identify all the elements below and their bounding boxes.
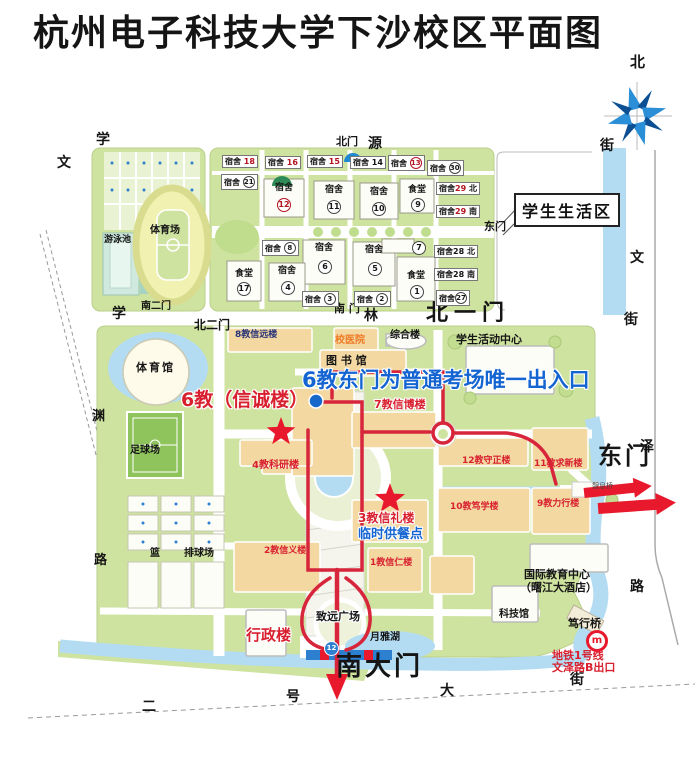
exam-entrance-note: 6教东门为普通考场唯一出入口 — [302, 370, 590, 391]
dorm-su14-label: 宿舍 14 — [350, 156, 386, 169]
dorm-su30-label: 宿舍 30 — [427, 160, 464, 176]
canteen-9-name: 食堂 — [408, 186, 426, 195]
building-12-label: 12教守正楼 — [462, 457, 511, 466]
zhiyuan-plaza-label: 致远广场 — [316, 611, 360, 622]
gate-north-second: 北二门 — [194, 319, 230, 331]
street-xueyuan-jie: 街 — [600, 139, 614, 153]
building-7-label: 7教信博楼 — [374, 399, 426, 410]
street-xuelin-lin: 林 — [364, 309, 378, 323]
gate-east: 东门 — [598, 444, 652, 468]
street-xueyuan-xue: 学 — [96, 133, 110, 147]
dorm-su4-number: 4 — [281, 281, 295, 295]
street-wenyuan-yuan: 渊 — [92, 410, 105, 423]
dorm-su10-name: 宿舍 — [370, 188, 388, 197]
compass-north-label: 北 — [630, 55, 645, 70]
street-erhao-jie: 街 — [570, 673, 584, 687]
library-label: 图 书 馆 — [326, 355, 367, 366]
dorm-su6-number: 6 — [318, 260, 332, 274]
dorm-su7-number: 7 — [412, 241, 426, 255]
dorm-su12-number: 12 — [277, 198, 291, 212]
canteen-1-name: 食堂 — [407, 272, 425, 281]
complex-building-label: 综合楼 — [390, 331, 420, 341]
exam-entrance-dot-icon — [309, 394, 323, 408]
dorm-su29n-label: 宿舍29 北 — [436, 182, 480, 195]
soccer-label: 足球场 — [130, 446, 160, 456]
moon-lake-label: 月雅湖 — [370, 633, 400, 643]
canteen-9-number: 9 — [411, 198, 425, 212]
street-erhao-hao: 号 — [286, 690, 300, 704]
duxing-bridge-label: 笃行桥 — [568, 618, 601, 629]
street-wenyuan-lu: 路 — [94, 554, 107, 567]
street-erhao-er: 二 — [142, 700, 156, 714]
dorm-su15-label: 宿舍 15 — [307, 155, 343, 168]
street-xueyuan-yuan: 源 — [368, 137, 382, 151]
courts-label-lan: 篮 — [150, 549, 160, 559]
gym-label: 体育馆 — [136, 362, 175, 373]
intl-center-label-line1: 国际教育中心 — [524, 569, 590, 580]
building-4-label: 4教科研楼 — [252, 461, 299, 471]
dorm-su21-label: 宿舍 21 — [221, 174, 258, 190]
dorm-su27-label: 宿舍27 — [436, 290, 470, 306]
building-3-label: 3教信礼楼 — [358, 512, 414, 524]
gate-south-main: 南大门 — [336, 654, 423, 680]
stadium — [136, 188, 208, 302]
science-hall-label: 科技馆 — [499, 610, 529, 620]
dorm-su12-name: 宿舍 — [275, 184, 293, 193]
gate-dorm-east: 东门 — [484, 221, 506, 232]
dorm-su5-number: 5 — [368, 262, 382, 276]
building-9-label: 9教力行楼 — [537, 500, 579, 509]
canteen-1-number: 1 — [410, 285, 424, 299]
building-2-label: 2教信义楼 — [264, 547, 306, 556]
activity-center-label: 学生活动中心 — [456, 334, 522, 345]
dorm-su11-name: 宿舍 — [325, 186, 343, 195]
street-wenyuan-wen: 文 — [57, 156, 71, 170]
top-right-canal — [603, 148, 626, 315]
dorm-su4-name: 宿舍 — [278, 267, 296, 276]
gate-north: 北门 — [336, 136, 358, 147]
street-xuelin-jie: 街 — [624, 313, 638, 327]
stop-12-icon: 12 — [324, 641, 339, 656]
dorm-su2-label: 宿舍 2 — [354, 291, 391, 307]
metro-exit-label: 文泽路B出口 — [552, 662, 615, 673]
hospital-label: 校医院 — [335, 336, 365, 346]
dorm-su16-label: 宿舍 16 — [265, 156, 301, 169]
dorm-su8-label: 宿舍 8 — [262, 240, 299, 256]
building-6-label: 6教（信诚楼） — [181, 391, 308, 410]
building-8-label: 8教信远楼 — [235, 331, 277, 340]
dorm-su18-label: 宿舍 18 — [222, 155, 258, 168]
street-wenze-wen: 文 — [630, 251, 644, 265]
qixi-bridge-label: 憩息桥 — [592, 483, 613, 490]
street-erhao-da: 大 — [440, 684, 454, 698]
dorm-su5-name: 宿舍 — [365, 246, 383, 255]
canteen-17-name: 食堂 — [235, 270, 253, 279]
metro-icon: m — [586, 630, 608, 652]
canteen-17-number: 17 — [237, 282, 251, 296]
street-xuelin-xue: 学 — [112, 307, 126, 321]
student-living-zone-box: 学生生活区 — [514, 193, 620, 227]
stadium-label: 体育场 — [150, 226, 180, 236]
map-title: 杭州电子科技大学下沙校区平面图 — [33, 16, 603, 52]
meal-point-note: 临时供餐点 — [358, 528, 423, 541]
courts-label-pai: 排球场 — [184, 549, 214, 559]
dorm-su28s-label: 宿舍28 南 — [434, 268, 478, 281]
admin-building-label: 行政楼 — [246, 628, 291, 643]
dorm-su6-name: 宿舍 — [315, 244, 333, 253]
campus-map: 杭州电子科技大学下沙校区平面图 北 学 源 街 学 林 街 文 渊 路 文 泽 … — [0, 0, 700, 758]
pool-label: 游泳池 — [104, 236, 131, 245]
dorm-su29s-label: 宿舍29 南 — [436, 205, 480, 218]
gate-north-first: 北一门 — [426, 303, 510, 325]
dorm-su10-number: 10 — [372, 202, 386, 216]
building-11-label: 11教求新楼 — [534, 460, 583, 469]
building-10-label: 10教笃学楼 — [450, 503, 499, 512]
building-1-label: 1教信仁楼 — [370, 559, 412, 568]
street-wenze-lu: 路 — [630, 580, 644, 594]
dorm-su28n-label: 宿舍28 北 — [434, 245, 478, 258]
gate-south-second: 南二门 — [141, 302, 171, 312]
dorm-su3-label: 宿舍 3 — [302, 291, 339, 307]
d orm-su11-number: 11 — [327, 200, 341, 214]
intl-center-label-line2: （曙江大酒店） — [520, 582, 597, 593]
dorm-su13-label: 宿舍 13 — [388, 155, 425, 171]
